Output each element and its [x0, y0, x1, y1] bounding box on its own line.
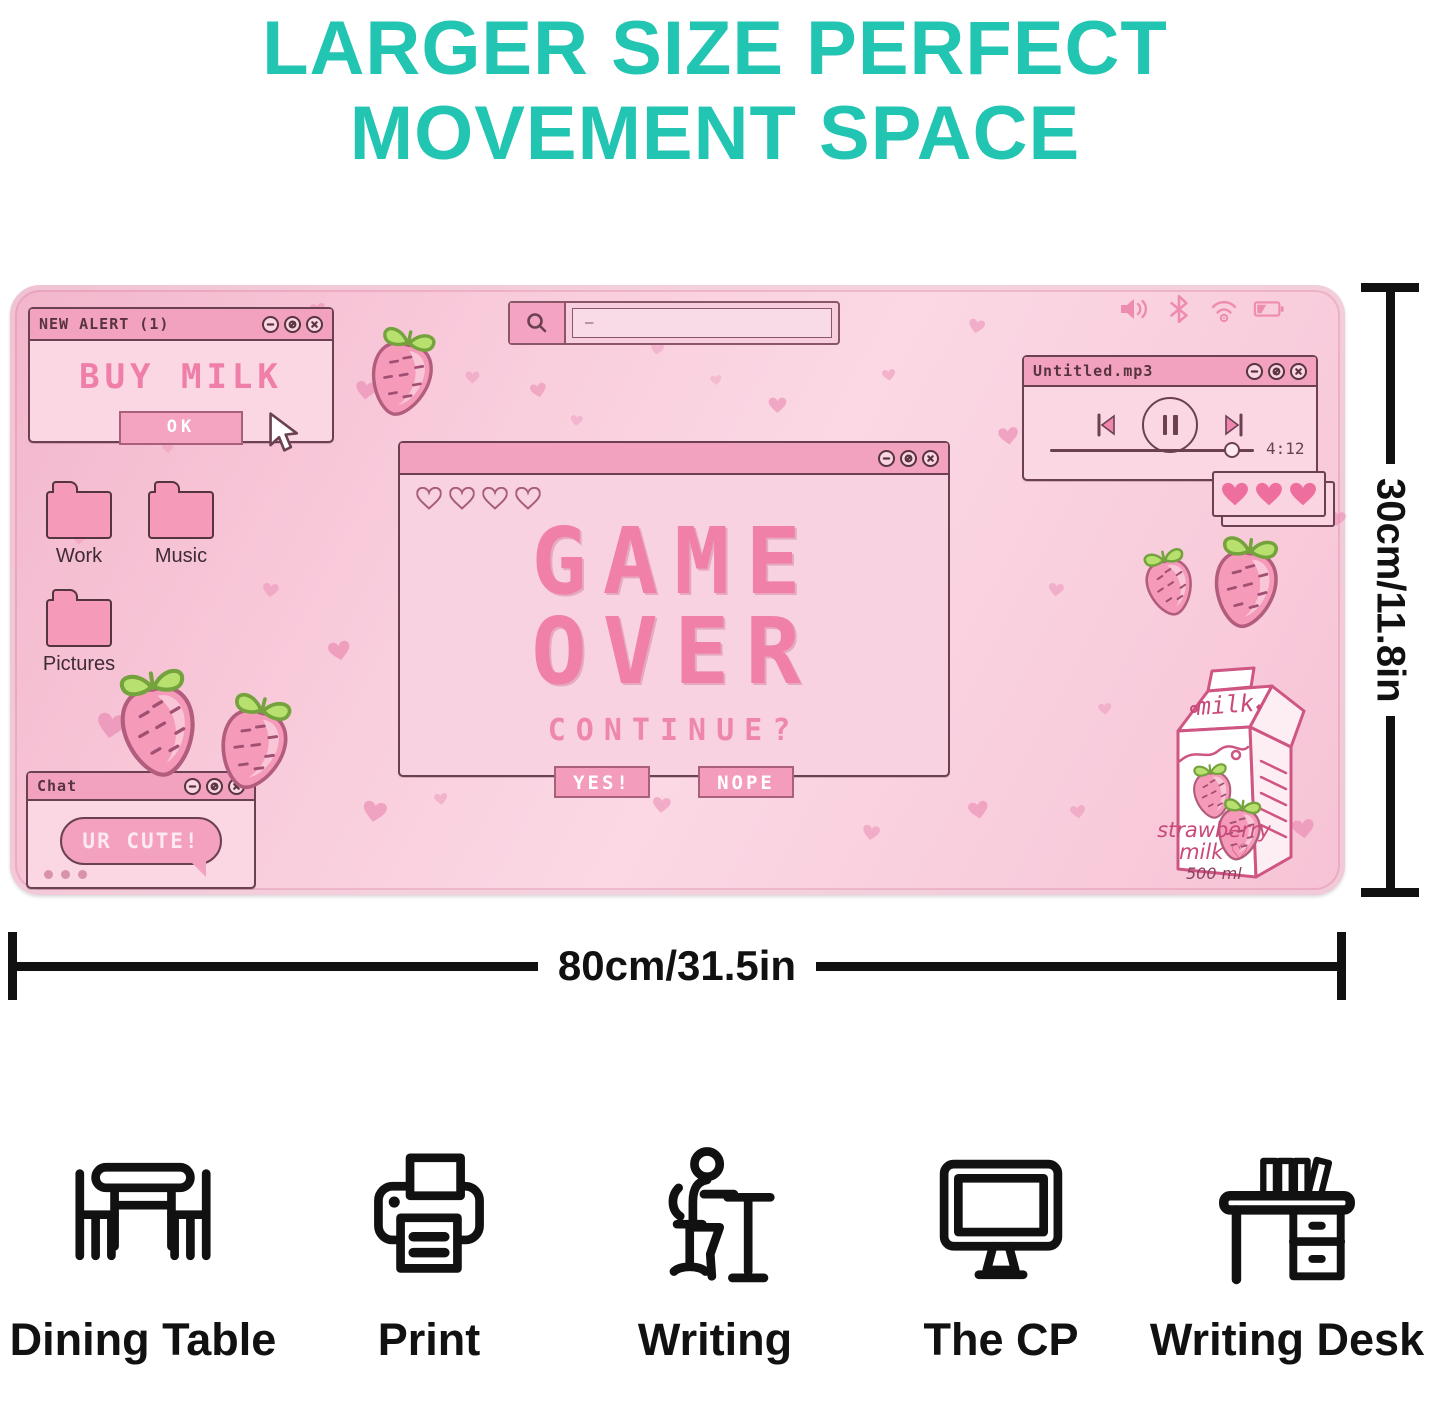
alert-window: NEW ALERT (1) BUY MILK OK [28, 307, 334, 443]
heart-icon [1047, 582, 1065, 598]
printer-icon [350, 1142, 508, 1300]
alert-window-title: NEW ALERT (1) [39, 315, 169, 333]
progress-knob [1224, 442, 1240, 458]
strawberry-icon [1194, 526, 1298, 640]
game-over-word1: GAME [400, 517, 948, 607]
feature-label: Writing Desk [1150, 1314, 1424, 1366]
cursor-icon [266, 411, 304, 453]
mousepad: NEW ALERT (1) BUY MILK OK — [10, 285, 1345, 895]
minimize-icon [262, 316, 279, 333]
strawberry-icon [349, 315, 456, 431]
music-player-title: Untitled.mp3 [1033, 362, 1153, 380]
heart-outline-icon [449, 487, 475, 510]
heart-icon [529, 381, 549, 399]
dining-table-icon [64, 1142, 222, 1300]
maximize-icon [1268, 363, 1285, 380]
carton-volume: 500 ml [1186, 864, 1242, 883]
game-over-window: GAME OVER CONTINUE? YES! NOPE [398, 441, 950, 777]
feature-label: The CP [923, 1314, 1078, 1366]
battery-icon [1253, 293, 1285, 325]
yes-button: YES! [554, 766, 650, 798]
music-player-window: Untitled.mp3 4:12 [1022, 355, 1318, 481]
pause-icon [1142, 397, 1198, 453]
nope-button: NOPE [698, 766, 794, 798]
hearts-card [1212, 471, 1326, 517]
folder-icon [46, 491, 112, 539]
heading-line-1: LARGER SIZE PERFECT [0, 6, 1430, 91]
status-icons [1118, 293, 1285, 325]
folder-icon [46, 599, 112, 647]
continue-prompt: CONTINUE? [400, 713, 948, 748]
heart-icon [651, 796, 672, 815]
feature-label: Print [378, 1314, 481, 1366]
bluetooth-icon [1163, 293, 1195, 325]
heart-icon [967, 317, 987, 335]
height-label: 30cm/11.8in [1368, 478, 1413, 703]
heart-icon [326, 639, 352, 663]
previous-track-icon [1092, 411, 1120, 439]
search-bar: — [508, 301, 840, 345]
feature-print: Print [286, 1124, 572, 1420]
folder-label: Work [36, 545, 122, 568]
product-image: LARGER SIZE PERFECT MOVEMENT SPACE NEW A… [0, 0, 1430, 1420]
search-input: — [572, 308, 832, 338]
ok-button: OK [119, 411, 243, 445]
heart-outline-icon [515, 487, 541, 510]
game-window-titlebar [400, 443, 948, 475]
minimize-icon [1246, 363, 1263, 380]
carton-name-line1: strawberry [1157, 818, 1271, 842]
folder-icon [148, 491, 214, 539]
maximize-icon [900, 450, 917, 467]
folder-music: Music [138, 481, 224, 568]
alert-window-titlebar: NEW ALERT (1) [30, 309, 332, 341]
game-over-word2: OVER [400, 607, 948, 697]
music-player-titlebar: Untitled.mp3 [1024, 357, 1316, 387]
close-icon [1290, 363, 1307, 380]
heart-icon [1289, 482, 1317, 507]
monitor-icon [922, 1142, 1080, 1300]
feature-writing-desk: Writing Desk [1144, 1124, 1430, 1420]
typing-indicator [44, 870, 87, 879]
folder-work: Work [36, 481, 122, 568]
heart-outline-icon [482, 487, 508, 510]
desk-icon [1208, 1142, 1366, 1300]
folder-label: Music [138, 545, 224, 568]
next-track-icon [1220, 411, 1248, 439]
minimize-icon [878, 450, 895, 467]
alert-message: BUY MILK [30, 357, 332, 397]
heart-icon [1097, 702, 1112, 716]
heart-icon [1255, 482, 1283, 507]
search-icon [510, 303, 566, 343]
features-row: Dining Table Print Writing [0, 1124, 1430, 1420]
feature-label: Writing [638, 1314, 792, 1366]
close-icon [922, 450, 939, 467]
heart-icon [768, 397, 787, 414]
wifi-icon [1208, 293, 1240, 325]
heart-icon [360, 799, 389, 825]
track-time: 4:12 [1266, 439, 1305, 458]
window-buttons [878, 450, 939, 467]
heading-line-2: MOVEMENT SPACE [0, 91, 1430, 176]
writing-icon [636, 1142, 794, 1300]
heart-outline-icon [416, 487, 442, 510]
maximize-icon [284, 316, 301, 333]
chat-bubble: UR CUTE! [60, 817, 222, 865]
carton-top-label: milk [1195, 689, 1256, 721]
progress-bar [1050, 449, 1254, 452]
feature-label: Dining Table [10, 1314, 277, 1366]
carton-name-line2: milk ♡ [1179, 840, 1249, 864]
feature-writing: Writing [572, 1124, 858, 1420]
heart-icon [881, 368, 897, 382]
height-dimension: 30cm/11.8in [1352, 283, 1428, 897]
feature-dining-table: Dining Table [0, 1124, 286, 1420]
heart-icon [465, 371, 480, 385]
strawberry-icon [194, 679, 313, 807]
window-buttons [262, 316, 323, 333]
heart-icon [997, 426, 1020, 447]
volume-icon [1118, 293, 1150, 325]
chat-window-title: Chat [37, 777, 77, 795]
heart-icon [261, 582, 280, 600]
lives-hearts [416, 487, 541, 510]
width-label: 80cm/31.5in [558, 942, 796, 990]
heart-icon [709, 374, 722, 386]
close-icon [306, 316, 323, 333]
heart-icon [967, 799, 991, 821]
folder-pictures: Pictures [36, 589, 122, 676]
milk-carton: milk strawberry milk ♡ 500 ml [1148, 651, 1346, 891]
heart-icon [861, 824, 882, 843]
heart-icon [1221, 482, 1249, 507]
window-buttons [1246, 363, 1307, 380]
heart-icon [569, 414, 583, 427]
page-title: LARGER SIZE PERFECT MOVEMENT SPACE [0, 6, 1430, 176]
feature-the-cp: The CP [858, 1124, 1144, 1420]
width-dimension: 80cm/31.5in [8, 932, 1346, 1000]
heart-icon [1069, 804, 1087, 820]
